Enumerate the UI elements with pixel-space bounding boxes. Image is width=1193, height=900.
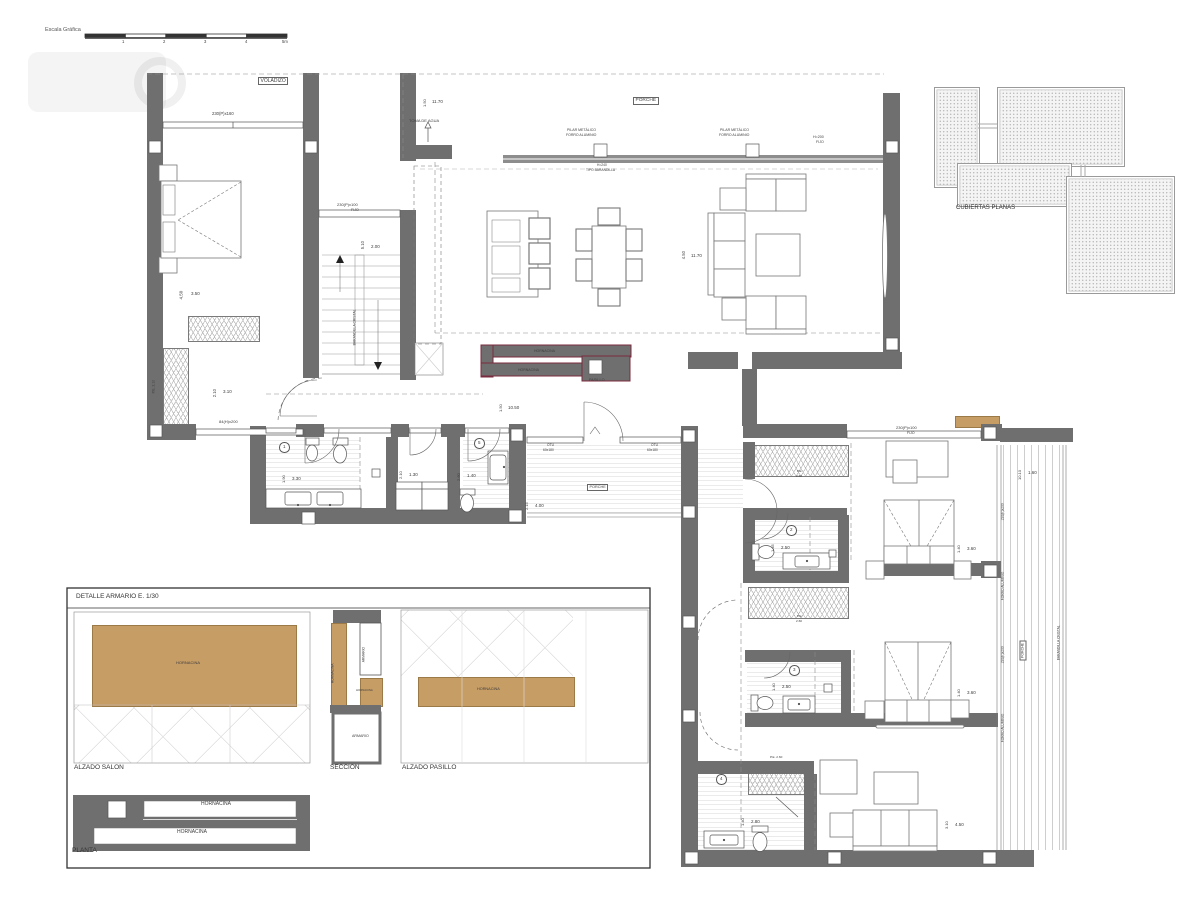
annotation-17: PILAR METÁLICO [567,129,596,133]
annotation-deck-rail: BARANDILLA CRISTAL [1058,625,1061,660]
annotation-59: 1.40 [772,683,776,691]
bedroom2-furniture [866,441,971,579]
annotation-41: 60x180 [543,449,554,452]
annotation-38: 2.60 [457,473,461,481]
annotation-scale-3: 3 [204,40,206,44]
annotation-forro-aluminio-1: FORRO ALUMINIO [1002,571,1005,600]
living-room-furniture [708,174,888,334]
annotation-35: 2.10 [399,471,403,479]
annotation-43: 60x180 [647,449,658,452]
annotation-69: 10.10 [1018,470,1022,480]
annotation-66: 2.80 [751,820,760,825]
annotation-73: 230(P)x200 [1002,646,1005,663]
annotation-hornacina-plan-2: HORNACINA [518,369,539,373]
annotation-25: 4.50 [682,251,686,259]
alzado-salon-title: ALZADO SALON [74,765,124,772]
kitchen-dining-furniture [414,166,642,344]
bathroom-fixtures [266,438,836,852]
annotation-46: 4.00 [535,504,544,509]
master-bedroom-furniture [159,165,241,273]
annotation-23: H=240 [597,164,607,167]
annotation-bath-4: 4 [716,774,727,785]
detail-panel [67,588,650,868]
annotation-36: 1.30 [409,473,418,478]
floor-plan-sheet: Escala Gráfica [0,0,1193,900]
planta-title: PLANTA [72,848,97,855]
annotation-voladizo: VOLADIZO [258,77,288,85]
annotation-30: 1.50 [499,404,503,412]
annotation-78: HORNACINA [332,663,335,683]
annotation-stair-rail: BARANDILLA CRISTAL [354,309,357,345]
seccion-title: SECCION [330,765,360,772]
annotation-2: 4.50 [180,290,185,299]
annotation-hornacina-planta-1: HORNACINA [201,802,231,807]
annotation-10: 5.10 [361,241,365,249]
annotation-52: 1.45 [771,544,775,552]
annotation-45: 2.15 [525,502,529,510]
annotation-22: FIJO [816,141,824,145]
annotation-5: 2.10 [213,389,217,397]
annotation-33: 1.90 [282,475,286,483]
annotation-50: 2.60 [796,475,802,478]
glass-wall [503,155,883,163]
staircase [322,255,443,375]
annotation-hornacina-pasillo: HORNACINA [477,688,500,692]
water-intake-marker [425,122,431,142]
annotation-26: 11.70 [691,254,702,259]
hornacina-plan-feature [481,345,631,381]
annotation-15: 11.70 [432,100,443,105]
annotation-64: P.E. 2.60 [770,756,782,759]
annotation-68: 4.50 [955,823,964,828]
annotation-56: P.E. [797,615,802,618]
annotation-81: ARMARIO [352,735,369,739]
annotation-porche-top: PORCHE [633,97,659,105]
annotation-70: 1.60 [1028,471,1037,476]
annotation-toma-de-agua: TOMA DE AGUA [409,119,439,123]
door-swings [278,378,790,750]
annotation-65: 1.40 [741,818,745,826]
key-plan-connectors [978,124,1085,177]
annotation-67: 3.10 [945,821,949,829]
annotation-40: OTU [547,444,554,447]
annotation-53: 2.50 [781,546,790,551]
windows [163,122,981,443]
annotation-55: 3.60 [967,547,976,552]
annotation-6: 3.10 [223,390,232,395]
annotation-34: 3.30 [292,477,301,482]
annotation-hornacina-salon: HORNACINA [176,661,200,665]
annotation-9: FIJO [351,209,359,213]
annotation-bath-2: 2 [786,525,797,536]
annotation-19: PILAR METÁLICO [720,129,749,133]
annotation-win-master: 230(P)x160 [212,112,234,116]
annotation-31: 10.50 [508,406,519,411]
annotation-scale-4: 4 [245,40,247,44]
annotation-scale-2: 2 [163,40,165,44]
detail-panel-title: DETALLE ARMARIO E. 1/30 [76,594,159,601]
annotation-24: TIPO BARANDILLA [586,169,615,172]
annotation-bath-3: 3 [789,665,800,676]
annotation-7: 84(H)x200 [219,420,238,424]
annotation-pasillo: PASILLO [589,379,605,383]
annotation-forro-aluminio-2: FORRO ALUMINIO [1002,713,1005,742]
annotation-porche-center: PORCHE [587,484,608,491]
annotation-porche-deck: PORCHE [1020,640,1027,660]
annotation-14: 1.50 [423,99,427,107]
annotation-54: 1.40 [957,545,961,553]
annotation-bath-1: 1 [279,442,290,453]
annotation-39: 1.40 [467,474,476,479]
annotation-bath-5: 5 [474,438,485,449]
annotation-79: ARMARIO [363,647,366,662]
annotation-49: P.E. [797,470,802,473]
annotation-hornacina-plan-1: HORNACINA [534,350,555,354]
annotation-3: 3.50 [191,292,200,297]
annotation-62: 3.60 [967,691,976,696]
annotation-hornacina-planta-2: HORNACINA [177,830,207,835]
annotation-47: 230(P)x100 [896,426,917,430]
annotation-61: 1.40 [957,689,961,697]
scale-bar-label: Escala Gráfica [45,28,81,34]
annotation-11: 2.00 [371,245,380,250]
scale-bar [85,34,287,39]
annotation-60: 2.50 [782,685,791,690]
annotation-scale-5: 5m [282,40,288,44]
annotation-20: FORRO ALUMINIO [719,134,749,138]
key-plan-title: CUBIERTAS PLANAS [956,205,1015,211]
plan-linework [0,0,1193,900]
annotation-8: 230(P)x100 [337,203,358,207]
annotation-scale-1: 1 [122,40,124,44]
annotation-57: 2.60 [796,620,802,623]
annotation-4: P.E. 2.10 [153,379,156,393]
annotation-80: HORNACINA [356,689,373,692]
glass-rails [527,445,1066,850]
annotation-48: FIJO [907,432,915,436]
alzado-pasillo-title: ALZADO PASILLO [402,765,456,772]
annotation-71: 230(P)x200 [1002,503,1005,520]
annotation-18: FORRO ALUMINIO [566,134,596,138]
annotation-42: OTU [651,444,658,447]
